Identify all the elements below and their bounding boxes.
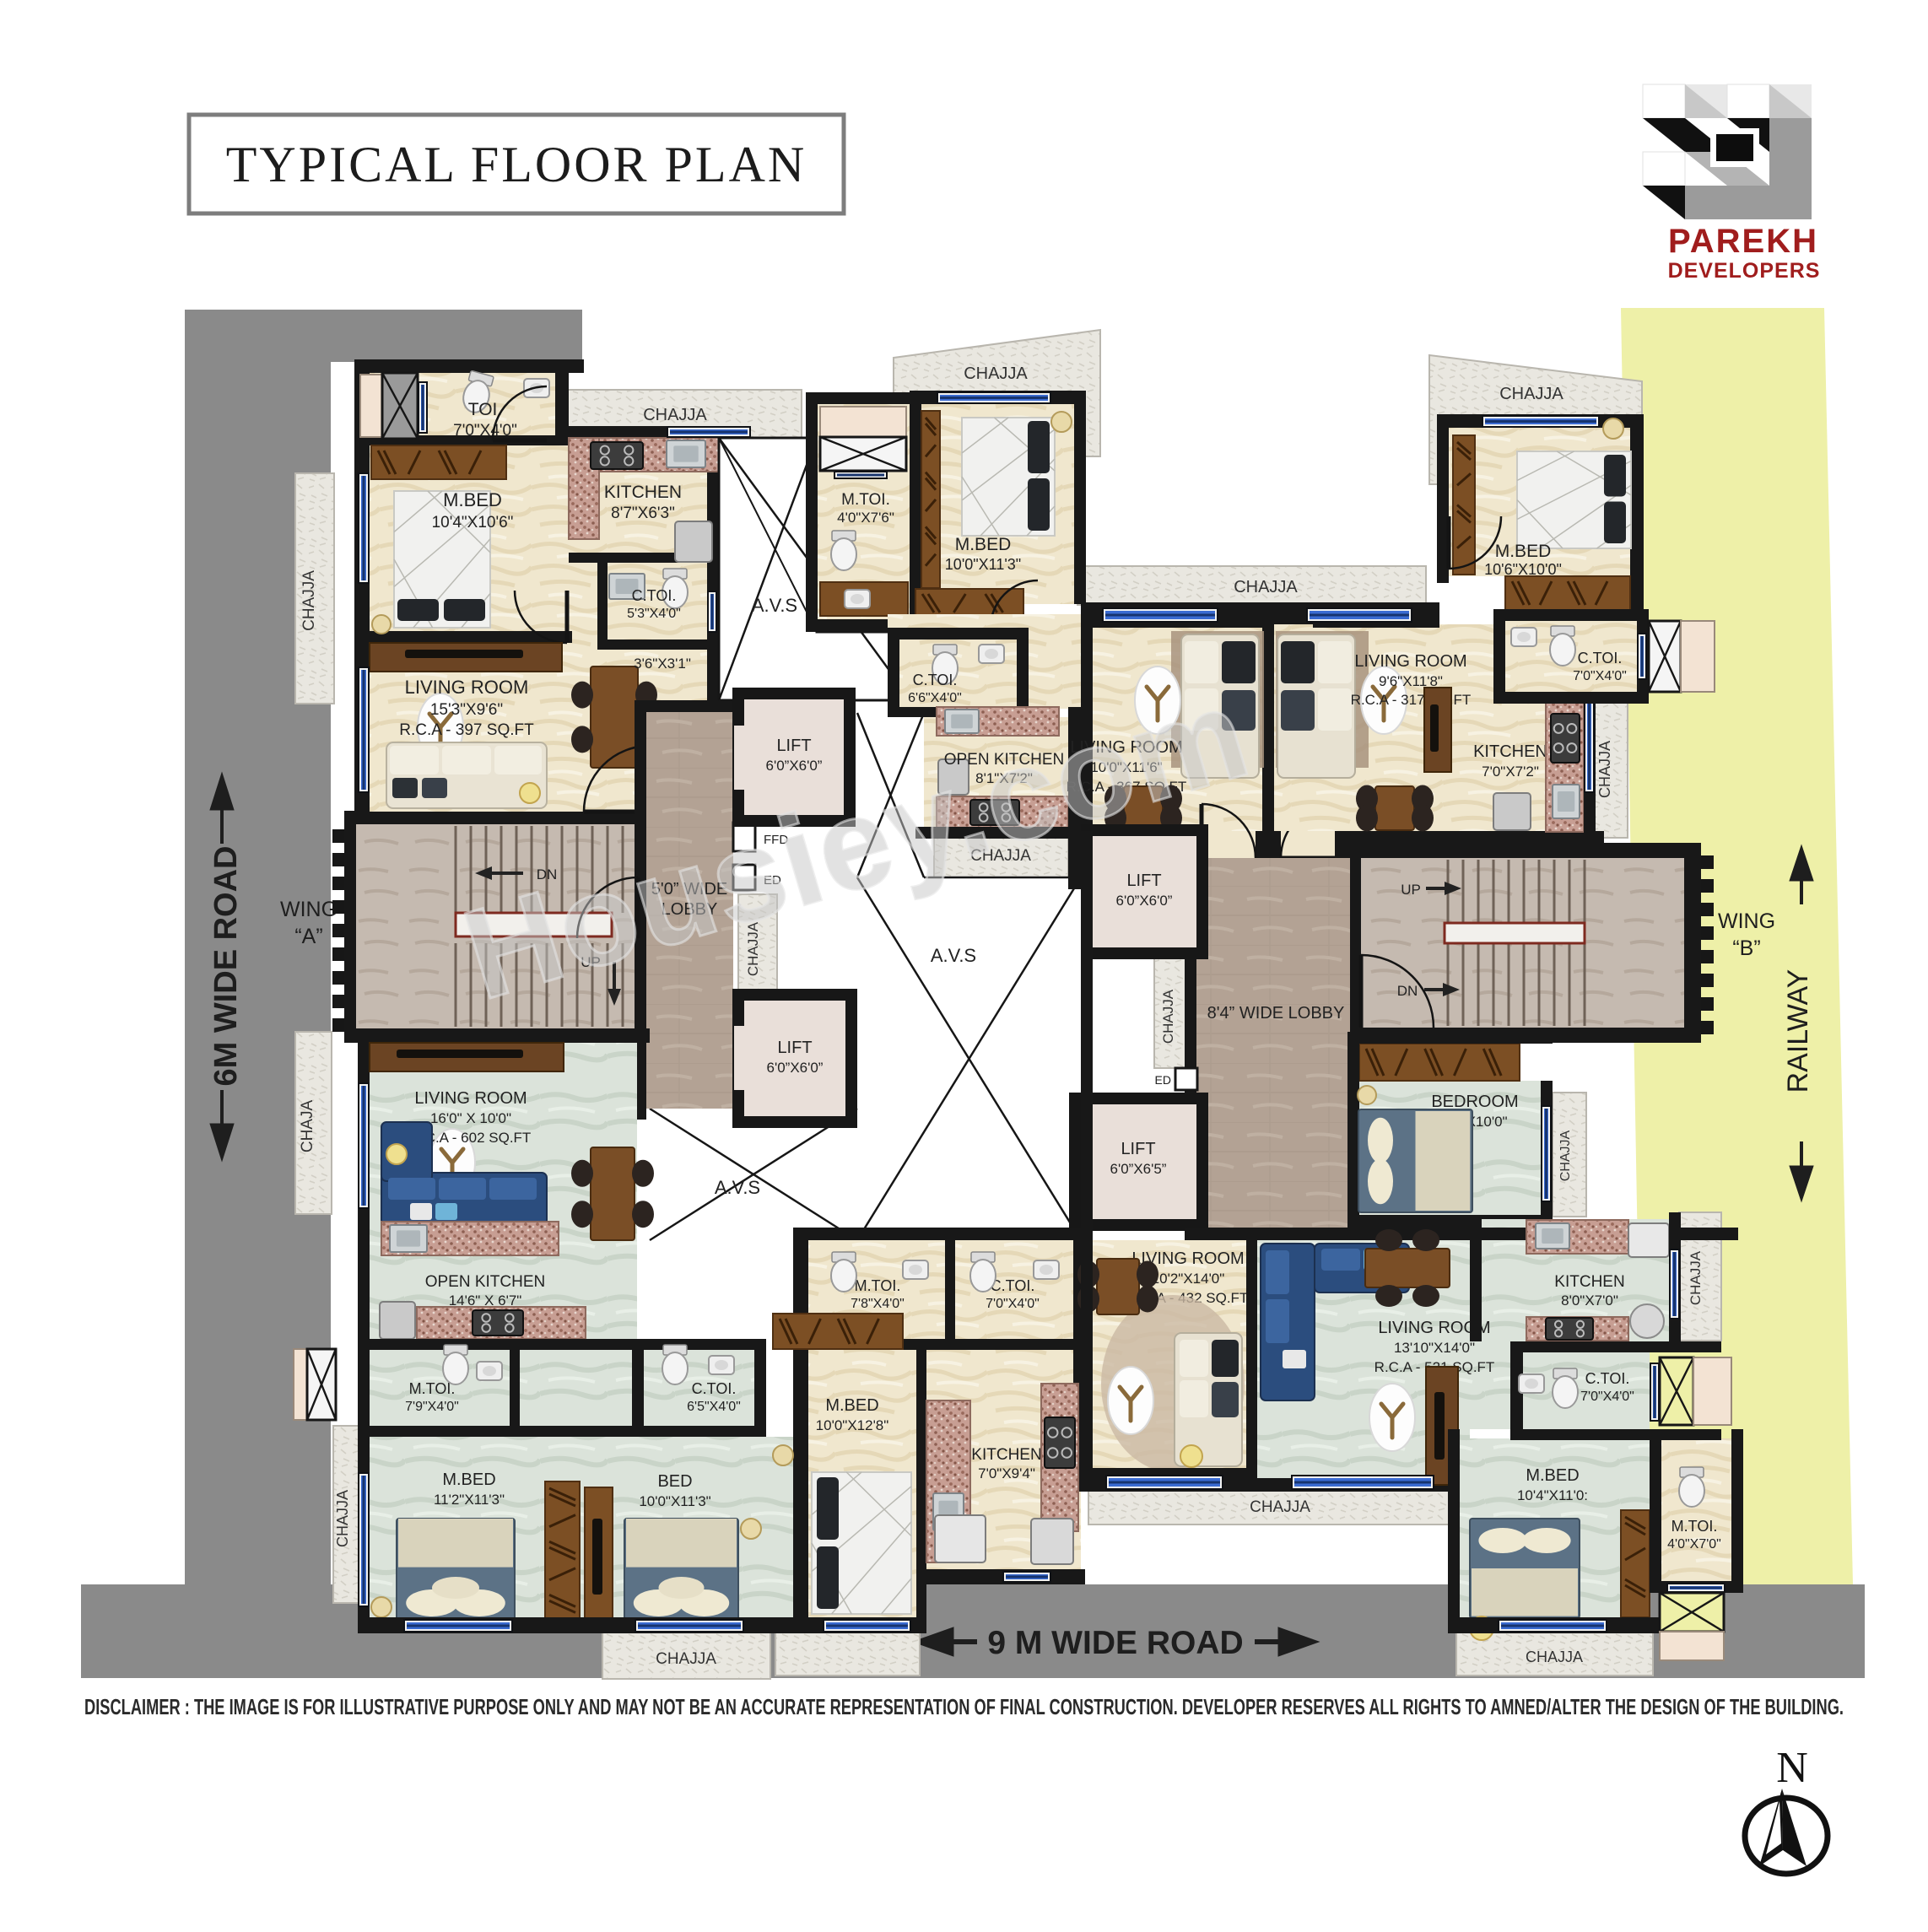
svg-text:5'3"X4'0": 5'3"X4'0" [627, 607, 681, 621]
svg-text:PAREKH: PAREKH [1668, 223, 1818, 260]
svg-text:10'2"X14'0": 10'2"X14'0" [1152, 1271, 1225, 1287]
svg-text:RAILWAY: RAILWAY [1782, 969, 1814, 1093]
svg-text:C.TOI.: C.TOI. [913, 672, 958, 688]
svg-text:BED: BED [657, 1472, 692, 1491]
svg-text:WING: WING [1718, 909, 1775, 933]
svg-text:8'7"X6'3": 8'7"X6'3" [611, 505, 675, 522]
svg-text:7'0"X7'2": 7'0"X7'2" [1482, 764, 1539, 780]
svg-text:C.TOI.: C.TOI. [632, 587, 677, 604]
svg-text:6'6"X4'0": 6'6"X4'0" [908, 691, 962, 705]
svg-text:R.C.A - 397 SQ.FT: R.C.A - 397 SQ.FT [399, 721, 534, 739]
svg-text:C.TOI.: C.TOI. [692, 1380, 737, 1397]
svg-text:M.BED: M.BED [1495, 542, 1552, 561]
svg-text:M.BED: M.BED [1526, 1466, 1579, 1485]
svg-text:CHAJJA: CHAJJA [1526, 1649, 1583, 1665]
svg-text:A.V.S: A.V.S [752, 595, 797, 616]
svg-text:“A”: “A” [294, 925, 322, 948]
svg-text:8'4” WIDE LOBBY: 8'4” WIDE LOBBY [1207, 1004, 1345, 1023]
svg-text:N: N [1776, 1744, 1808, 1792]
svg-text:KITCHEN: KITCHEN [971, 1446, 1041, 1464]
svg-text:C.TOI.: C.TOI. [1578, 650, 1623, 666]
svg-text:CHAJJA: CHAJJA [300, 570, 318, 631]
svg-text:M.TOI.: M.TOI. [409, 1380, 456, 1397]
svg-text:CHAJJA: CHAJJA [1234, 578, 1298, 596]
svg-text:CHAJJA: CHAJJA [1688, 1250, 1704, 1305]
svg-text:10'4"X11'0:: 10'4"X11'0: [1517, 1487, 1588, 1503]
svg-text:10'0"X11'3": 10'0"X11'3" [639, 1493, 710, 1509]
svg-text:4'0"X7'0": 4'0"X7'0" [1667, 1537, 1721, 1552]
svg-text:LIVING ROOM: LIVING ROOM [414, 1089, 527, 1108]
svg-text:BEDROOM: BEDROOM [1431, 1093, 1518, 1111]
svg-text:M.BED: M.BED [442, 1471, 495, 1489]
svg-text:TYPICAL FLOOR PLAN: TYPICAL FLOOR PLAN [226, 137, 807, 192]
svg-text:6'0”X6'5”: 6'0”X6'5” [1110, 1161, 1167, 1177]
svg-text:4'0"X7'6": 4'0"X7'6" [837, 510, 894, 526]
svg-text:DISCLAIMER : THE IMAGE IS FOR: DISCLAIMER : THE IMAGE IS FOR ILLUSTRATI… [84, 1694, 1844, 1719]
svg-text:A.V.S: A.V.S [715, 1177, 760, 1198]
svg-text:7'0"X4'0": 7'0"X4'0" [1573, 669, 1627, 683]
svg-text:LIVING ROOM: LIVING ROOM [1354, 652, 1466, 671]
svg-text:6'0”X6'0”: 6'0”X6'0” [1116, 893, 1173, 909]
svg-text:CHAJJA: CHAJJA [656, 1650, 716, 1668]
svg-text:KITCHEN: KITCHEN [604, 483, 682, 502]
svg-text:7'8"X4'0": 7'8"X4'0" [851, 1297, 905, 1311]
svg-text:16'0" X 10'0": 16'0" X 10'0" [430, 1110, 511, 1126]
svg-text:13'10"X14'0": 13'10"X14'0" [1394, 1340, 1475, 1356]
svg-text:DN: DN [1397, 983, 1418, 999]
svg-text:6M WIDE ROAD: 6M WIDE ROAD [208, 846, 244, 1087]
svg-text:OPEN KITCHEN: OPEN KITCHEN [425, 1273, 546, 1291]
svg-text:M.BED: M.BED [825, 1396, 878, 1415]
svg-text:C.TOI.: C.TOI. [991, 1277, 1035, 1294]
svg-text:7'9"X4'0": 7'9"X4'0" [405, 1400, 459, 1414]
svg-text:CHAJA: CHAJA [299, 1100, 316, 1153]
svg-text:A.V.S: A.V.S [931, 945, 976, 966]
svg-text:CHAJJA: CHAJJA [1250, 1498, 1310, 1516]
svg-text:15'3"X9'6": 15'3"X9'6" [430, 701, 503, 719]
svg-text:11'2"X11'3": 11'2"X11'3" [434, 1492, 505, 1508]
svg-text:6'0”X6'0”: 6'0”X6'0” [767, 1060, 824, 1076]
svg-text:LIFT: LIFT [776, 737, 811, 755]
svg-text:CHAJJA: CHAJJA [1558, 1130, 1573, 1181]
svg-text:CHAJJA: CHAJJA [1160, 989, 1176, 1044]
svg-text:“B”: “B” [1732, 936, 1760, 960]
svg-text:LIFT: LIFT [1126, 872, 1161, 890]
svg-text:WING: WING [280, 898, 338, 921]
svg-text:9 M WIDE ROAD: 9 M WIDE ROAD [987, 1625, 1243, 1661]
svg-text:ED: ED [1155, 1073, 1171, 1087]
svg-text:LIFT: LIFT [1121, 1140, 1155, 1158]
svg-text:M.BED: M.BED [443, 489, 502, 510]
svg-text:M.TOI.: M.TOI. [841, 491, 890, 509]
svg-text:DEVELOPERS: DEVELOPERS [1668, 259, 1821, 283]
svg-text:C.TOI.: C.TOI. [1585, 1370, 1630, 1387]
svg-text:CHAJJA: CHAJJA [1499, 385, 1563, 403]
svg-text:7'0"X4'0": 7'0"X4'0" [986, 1297, 1040, 1311]
svg-text:10'0"X11'3": 10'0"X11'3" [945, 556, 1021, 573]
svg-text:14'6" X 6'7": 14'6" X 6'7" [449, 1292, 522, 1309]
svg-text:7'0"X9'4": 7'0"X9'4" [978, 1465, 1035, 1481]
svg-text:LIVING ROOM: LIVING ROOM [405, 677, 529, 698]
svg-text:R.C.A - 317 SQ.FT: R.C.A - 317 SQ.FT [1351, 692, 1472, 708]
svg-text:8'0"X7'0": 8'0"X7'0" [1561, 1292, 1618, 1309]
svg-text:KITCHEN: KITCHEN [1554, 1273, 1624, 1291]
svg-text:7'0"X4'0": 7'0"X4'0" [453, 422, 517, 440]
svg-text:10'0"X12'8": 10'0"X12'8" [816, 1417, 889, 1433]
svg-text:CHAJJA: CHAJJA [964, 364, 1028, 383]
svg-text:6'5"X4'0": 6'5"X4'0" [687, 1400, 741, 1414]
svg-text:M.BED: M.BED [955, 535, 1012, 554]
svg-text:M.TOI.: M.TOI. [855, 1277, 901, 1294]
svg-text:CHAJJA: CHAJJA [1596, 741, 1613, 798]
svg-text:10'4"X10'6": 10'4"X10'6" [432, 514, 514, 532]
svg-text:CHAJJA: CHAJJA [334, 1490, 351, 1547]
svg-text:KITCHEN: KITCHEN [1473, 742, 1547, 761]
svg-text:LIFT: LIFT [777, 1039, 812, 1057]
svg-text:3'6"X3'1": 3'6"X3'1" [634, 656, 691, 672]
svg-text:7'0"X4'0": 7'0"X4'0" [1580, 1390, 1634, 1404]
svg-text:M.TOI.: M.TOI. [1671, 1518, 1718, 1535]
svg-text:CHAJJA: CHAJJA [643, 406, 707, 424]
svg-text:UP: UP [1401, 882, 1421, 898]
svg-text:6'0”X6'0”: 6'0”X6'0” [766, 758, 823, 774]
